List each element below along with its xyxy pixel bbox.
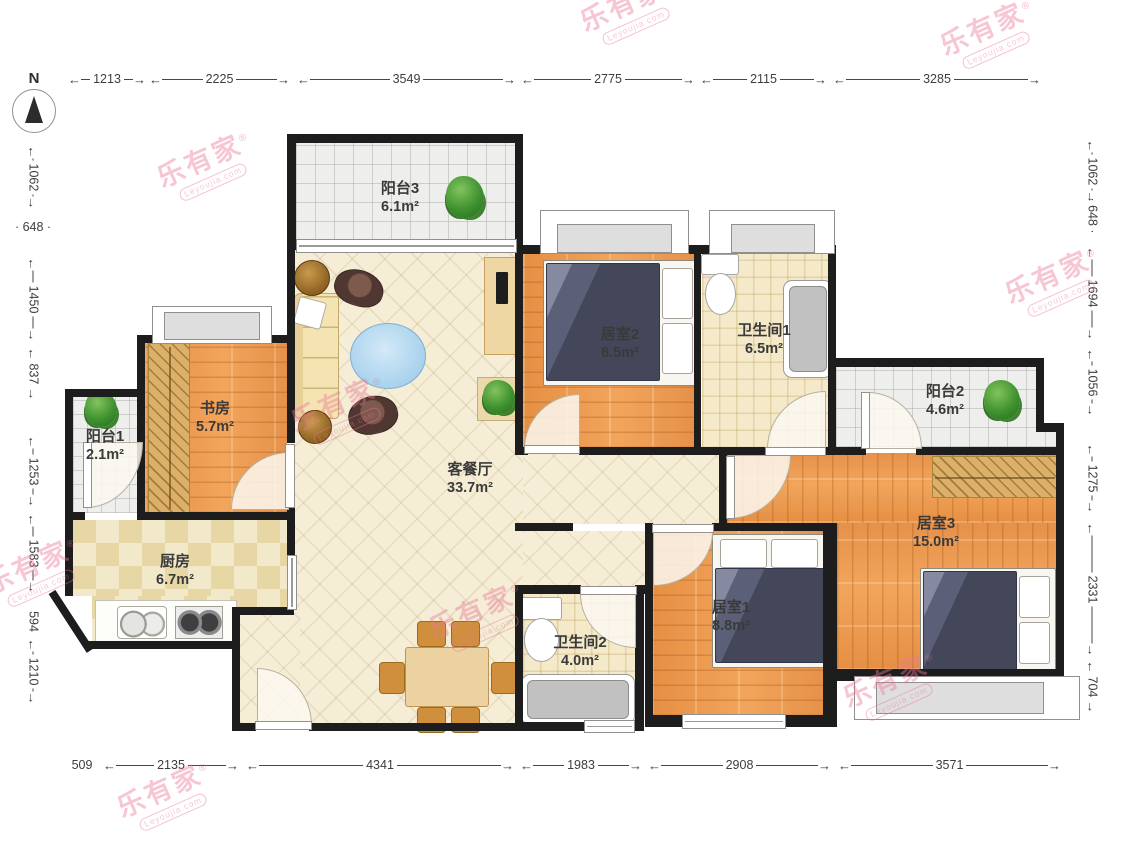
compass-circle — [12, 89, 56, 133]
bed-pillow — [771, 539, 818, 568]
dim-right-6: 2331 — [1084, 523, 1101, 657]
side-table — [294, 260, 330, 296]
wall-segment — [712, 523, 831, 531]
living-dining-floor — [523, 453, 719, 524]
room-label-living-dining: 客餐厅33.7m² — [420, 461, 520, 498]
toilet-icon — [705, 273, 736, 315]
room-label-balcony1: 阳台12.1m² — [70, 428, 140, 465]
room-label-kitchen: 厨房6.7m² — [140, 553, 210, 590]
dim-left-6: 1583 — [25, 514, 42, 594]
dim-bottom-4: 1983 — [520, 757, 642, 774]
arrow-right-icon — [277, 71, 290, 88]
arrow-right-icon — [1048, 757, 1061, 774]
arrow-left-icon — [1084, 523, 1101, 536]
wall-segment — [1056, 423, 1064, 681]
dim-left-7: 594 — [25, 605, 42, 639]
dim-top-2: 2225 — [149, 71, 290, 88]
exterior-mask — [1044, 358, 1066, 424]
arrow-right-icon — [501, 757, 514, 774]
window-sill — [557, 224, 672, 253]
dim-bottom-2: 2135 — [103, 757, 239, 774]
tv-icon — [496, 272, 508, 304]
wall-segment — [65, 512, 85, 520]
window — [296, 239, 517, 253]
bathtub-icon — [521, 674, 635, 725]
room-label-balcony2: 阳台24.6m² — [893, 383, 997, 420]
arrow-left-icon — [521, 71, 534, 88]
toilet-tank — [701, 254, 739, 275]
arrow-left-icon — [68, 71, 81, 88]
door-leaf — [285, 444, 295, 508]
compass-north-label: N — [8, 70, 60, 87]
bed — [543, 260, 699, 386]
plant-icon — [483, 380, 515, 414]
arrow-right-icon — [1084, 328, 1101, 341]
door-leaf — [652, 524, 714, 533]
watermark: 乐有家®Leyoujia.com — [148, 126, 267, 212]
dim-left-3: 1450 — [25, 258, 42, 342]
arrow-left-icon — [838, 757, 851, 774]
wall-segment — [1036, 358, 1044, 431]
dim-right-7: 704 — [1084, 661, 1101, 707]
arrow-left-icon — [246, 757, 259, 774]
wall-segment — [88, 641, 234, 649]
window — [584, 720, 635, 733]
bed-pillow — [662, 268, 693, 319]
arrow-right-icon — [25, 692, 42, 705]
arrow-right-icon — [133, 71, 146, 88]
arrow-right-icon — [629, 757, 642, 774]
dim-bottom-6: 3571 — [838, 757, 1061, 774]
arrow-right-icon — [1084, 700, 1101, 713]
wall-segment — [828, 253, 836, 454]
door-leaf — [255, 721, 312, 730]
arrow-left-icon — [25, 348, 42, 361]
arrow-right-icon — [25, 387, 42, 400]
arrow-left-icon — [103, 757, 116, 774]
arrow-left-icon — [700, 71, 713, 88]
arrow-right-icon — [818, 757, 831, 774]
wall-segment — [823, 523, 837, 727]
arrow-right-icon — [25, 329, 42, 342]
arrow-left-icon — [1084, 140, 1101, 153]
arrow-right-icon — [25, 581, 42, 594]
dining-chair — [379, 662, 405, 694]
dim-top-4: 2775 — [521, 71, 695, 88]
watermark: 乐有家®Leyoujia.com — [931, 0, 1050, 79]
arrow-right-icon — [226, 757, 239, 774]
arrow-left-icon — [520, 757, 533, 774]
door-leaf — [726, 456, 735, 519]
arrow-left-icon — [648, 757, 661, 774]
door-leaf — [765, 447, 826, 456]
dim-top-5: 2115 — [700, 71, 827, 88]
dim-top-1: 1213 — [68, 71, 146, 88]
compass: N — [8, 70, 60, 133]
wall-segment — [645, 523, 653, 724]
dining-table — [405, 647, 489, 707]
wall-segment — [515, 523, 573, 531]
wall-segment — [309, 723, 524, 731]
dining-chair — [417, 621, 446, 647]
bed-blanket — [923, 571, 1017, 671]
arrow-left-icon — [25, 514, 42, 527]
wall-segment — [65, 389, 145, 397]
dining-chair — [451, 621, 480, 647]
arrow-left-icon — [25, 639, 42, 652]
wall-segment — [694, 253, 701, 448]
wall-segment — [515, 245, 523, 455]
wall-segment — [138, 512, 295, 520]
arrow-left-icon — [25, 146, 42, 159]
wall-segment — [781, 715, 830, 727]
room-label-study: 书房5.7m² — [168, 400, 262, 437]
sink-icon — [117, 606, 167, 639]
coffee-table — [350, 323, 426, 389]
dim-bottom-5: 2908 — [648, 757, 831, 774]
window — [287, 555, 297, 610]
room-label-bedroom2: 居室28.5m² — [568, 326, 672, 363]
side-table — [298, 410, 332, 444]
wall-segment — [287, 134, 295, 443]
wall-segment — [916, 447, 1056, 455]
bed-pillow — [1019, 576, 1050, 618]
dim-right-1: 1062 — [1084, 140, 1101, 200]
room-label-bedroom3: 居室315.0m² — [886, 515, 986, 552]
room-label-bedroom1: 居室18.8m² — [683, 599, 779, 636]
dim-right-4: 1056 — [1084, 349, 1101, 417]
door-leaf — [524, 445, 580, 454]
wall-segment — [645, 715, 685, 727]
room-label-balcony3: 阳台36.1m² — [348, 180, 452, 217]
arrow-right-icon — [1028, 71, 1041, 88]
wardrobe-icon — [932, 456, 1058, 498]
arrow-right-icon — [1084, 644, 1101, 657]
door-leaf — [861, 392, 870, 449]
arrow-right-icon — [814, 71, 827, 88]
arrow-left-icon — [833, 71, 846, 88]
room-label-bathroom1: 卫生间16.5m² — [702, 322, 826, 359]
wall-segment — [515, 134, 523, 253]
arrow-left-icon — [1084, 247, 1101, 260]
dim-bottom-3: 4341 — [246, 757, 514, 774]
door-leaf — [580, 586, 637, 595]
arrow-right-icon — [1084, 404, 1101, 417]
bed — [920, 568, 1056, 676]
room-label-bathroom2: 卫生间24.0m² — [518, 634, 642, 671]
window — [682, 714, 786, 729]
wall-segment — [579, 447, 765, 455]
bed-pillow — [720, 539, 767, 568]
north-arrow-icon — [25, 96, 43, 123]
stove-icon — [175, 606, 223, 639]
wall-segment — [830, 358, 1044, 367]
window-sill — [164, 312, 260, 340]
arrow-right-icon — [25, 196, 42, 209]
dim-right-5: 1275 — [1084, 444, 1101, 514]
arrow-left-icon — [149, 71, 162, 88]
wall-segment — [49, 590, 94, 653]
toilet-tank — [521, 597, 562, 620]
wall-segment — [232, 607, 240, 731]
arrow-left-icon — [25, 436, 42, 449]
dim-bottom-1: 509 — [64, 757, 100, 774]
dim-top-6: 3285 — [833, 71, 1041, 88]
wall-segment — [515, 585, 581, 594]
wall-segment — [65, 389, 73, 596]
arrow-left-icon — [25, 258, 42, 271]
dim-left-2: 648 — [13, 219, 53, 236]
bed-blanket — [546, 263, 660, 381]
wall-segment — [515, 722, 586, 731]
dim-left-5: 1253 — [25, 436, 42, 508]
dim-right-2: 648 — [1084, 196, 1101, 236]
dining-chair — [491, 662, 517, 694]
arrow-right-icon — [503, 71, 516, 88]
wall-segment — [288, 134, 523, 143]
bed-pillow — [1019, 622, 1050, 664]
arrow-right-icon — [682, 71, 695, 88]
dim-left-4: 837 — [25, 348, 42, 388]
window-sill — [876, 682, 1044, 714]
living-dining-floor — [523, 531, 645, 586]
arrow-right-icon — [1084, 501, 1101, 514]
wall-segment — [232, 607, 294, 615]
arrow-left-icon — [1084, 444, 1101, 457]
arrow-right-icon — [25, 495, 42, 508]
window-sill — [731, 224, 815, 253]
dim-top-3: 3549 — [297, 71, 516, 88]
arrow-left-icon — [297, 71, 310, 88]
arrow-left-icon — [1084, 661, 1101, 674]
dim-left-1: 1062 — [25, 146, 42, 208]
arrow-left-icon — [1084, 349, 1101, 362]
watermark: 乐有家®Leyoujia.com — [571, 0, 690, 55]
floor-plan: N 1213 2225 3549 2775 2115 3285 509 2135… — [0, 0, 1125, 844]
dim-right-3: 1694 — [1084, 247, 1101, 341]
dim-left-8: 1210 — [25, 639, 42, 705]
